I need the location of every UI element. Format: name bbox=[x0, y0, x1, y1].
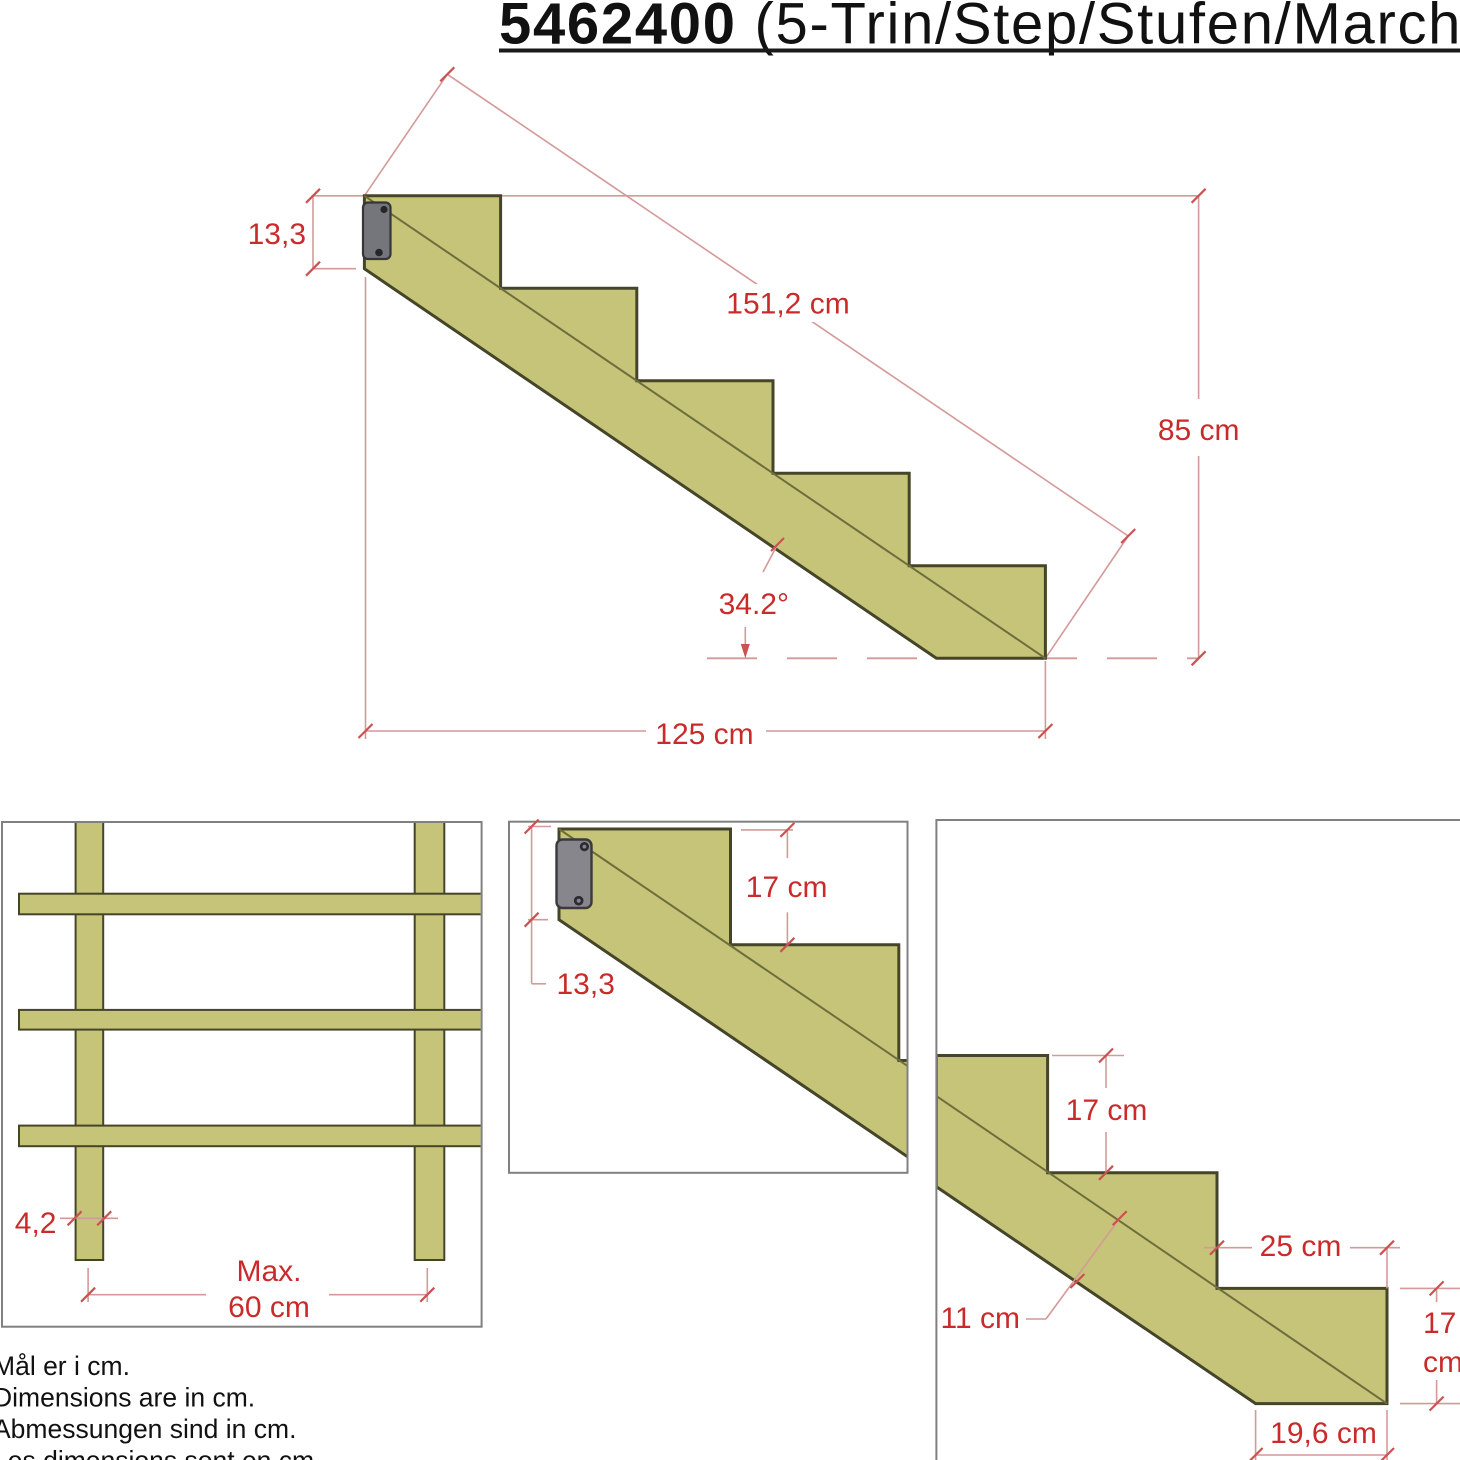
svg-text:Abmessungen sind in cm.: Abmessungen sind in cm. bbox=[0, 1414, 296, 1444]
svg-text:60 cm: 60 cm bbox=[228, 1291, 310, 1324]
svg-text:Max.: Max. bbox=[236, 1255, 301, 1288]
svg-text:17: 17 bbox=[1423, 1307, 1456, 1340]
svg-text:13,3: 13,3 bbox=[248, 218, 306, 251]
svg-text:34.2°: 34.2° bbox=[719, 588, 789, 621]
svg-text:17 cm: 17 cm bbox=[746, 871, 828, 904]
svg-text:19,6 cm: 19,6 cm bbox=[1270, 1417, 1377, 1450]
svg-text:151,2 cm: 151,2 cm bbox=[726, 288, 849, 321]
svg-text:Dimensions are in cm.: Dimensions are in cm. bbox=[0, 1383, 255, 1413]
svg-text:125 cm: 125 cm bbox=[655, 718, 753, 751]
svg-text:Mål er i cm.: Mål er i cm. bbox=[0, 1351, 130, 1381]
svg-text:11 cm: 11 cm bbox=[941, 1302, 1020, 1335]
svg-text:85 cm: 85 cm bbox=[1158, 414, 1240, 447]
svg-text:cm: cm bbox=[1423, 1346, 1460, 1379]
svg-text:4,2: 4,2 bbox=[15, 1207, 57, 1240]
svg-text:Les dimensions sont en cm.: Les dimensions sont en cm. bbox=[0, 1446, 321, 1460]
svg-text:17 cm: 17 cm bbox=[1066, 1094, 1148, 1127]
svg-text:13,3: 13,3 bbox=[557, 968, 615, 1001]
svg-text:25 cm: 25 cm bbox=[1260, 1230, 1342, 1263]
svg-text:5462400 (5-Trin/Step/Stufen/Ma: 5462400 (5-Trin/Step/Stufen/March) bbox=[499, 0, 1460, 57]
